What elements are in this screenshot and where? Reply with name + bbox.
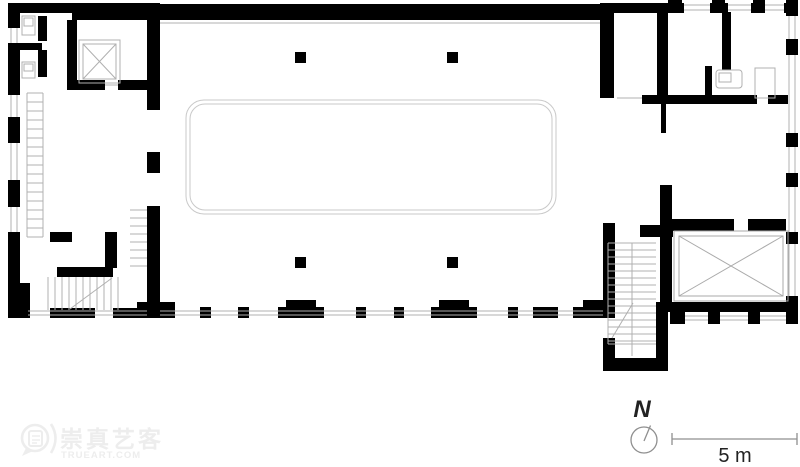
- void-shaft-x: [674, 231, 788, 301]
- watermark: 崇真艺客 TRUEART.COM: [22, 424, 164, 461]
- watermark-logo-icon: [22, 424, 56, 456]
- north-label: N: [633, 396, 651, 423]
- floor-plan-page: N 5 m 崇真艺客 TRUEART.COM: [0, 0, 800, 467]
- watermark-text-en: TRUEART.COM: [61, 450, 141, 461]
- scale-bar: 5 m: [672, 433, 797, 467]
- stair-southwest-treads: [48, 210, 147, 310]
- elevator-shaft-x: [79, 40, 120, 83]
- stair-southeast-treads: [608, 243, 656, 356]
- skylight-outline: [186, 100, 556, 214]
- scale-bar-line: [672, 433, 797, 445]
- scale-label: 5 m: [718, 445, 751, 467]
- floor-plan-drawing: N 5 m 崇真艺客 TRUEART.COM: [0, 0, 800, 467]
- watermark-text-cn: 崇真艺客: [60, 426, 164, 452]
- north-arrow: N: [631, 396, 657, 453]
- window-lines: [11, 5, 795, 320]
- stair-west-treads: [27, 93, 43, 237]
